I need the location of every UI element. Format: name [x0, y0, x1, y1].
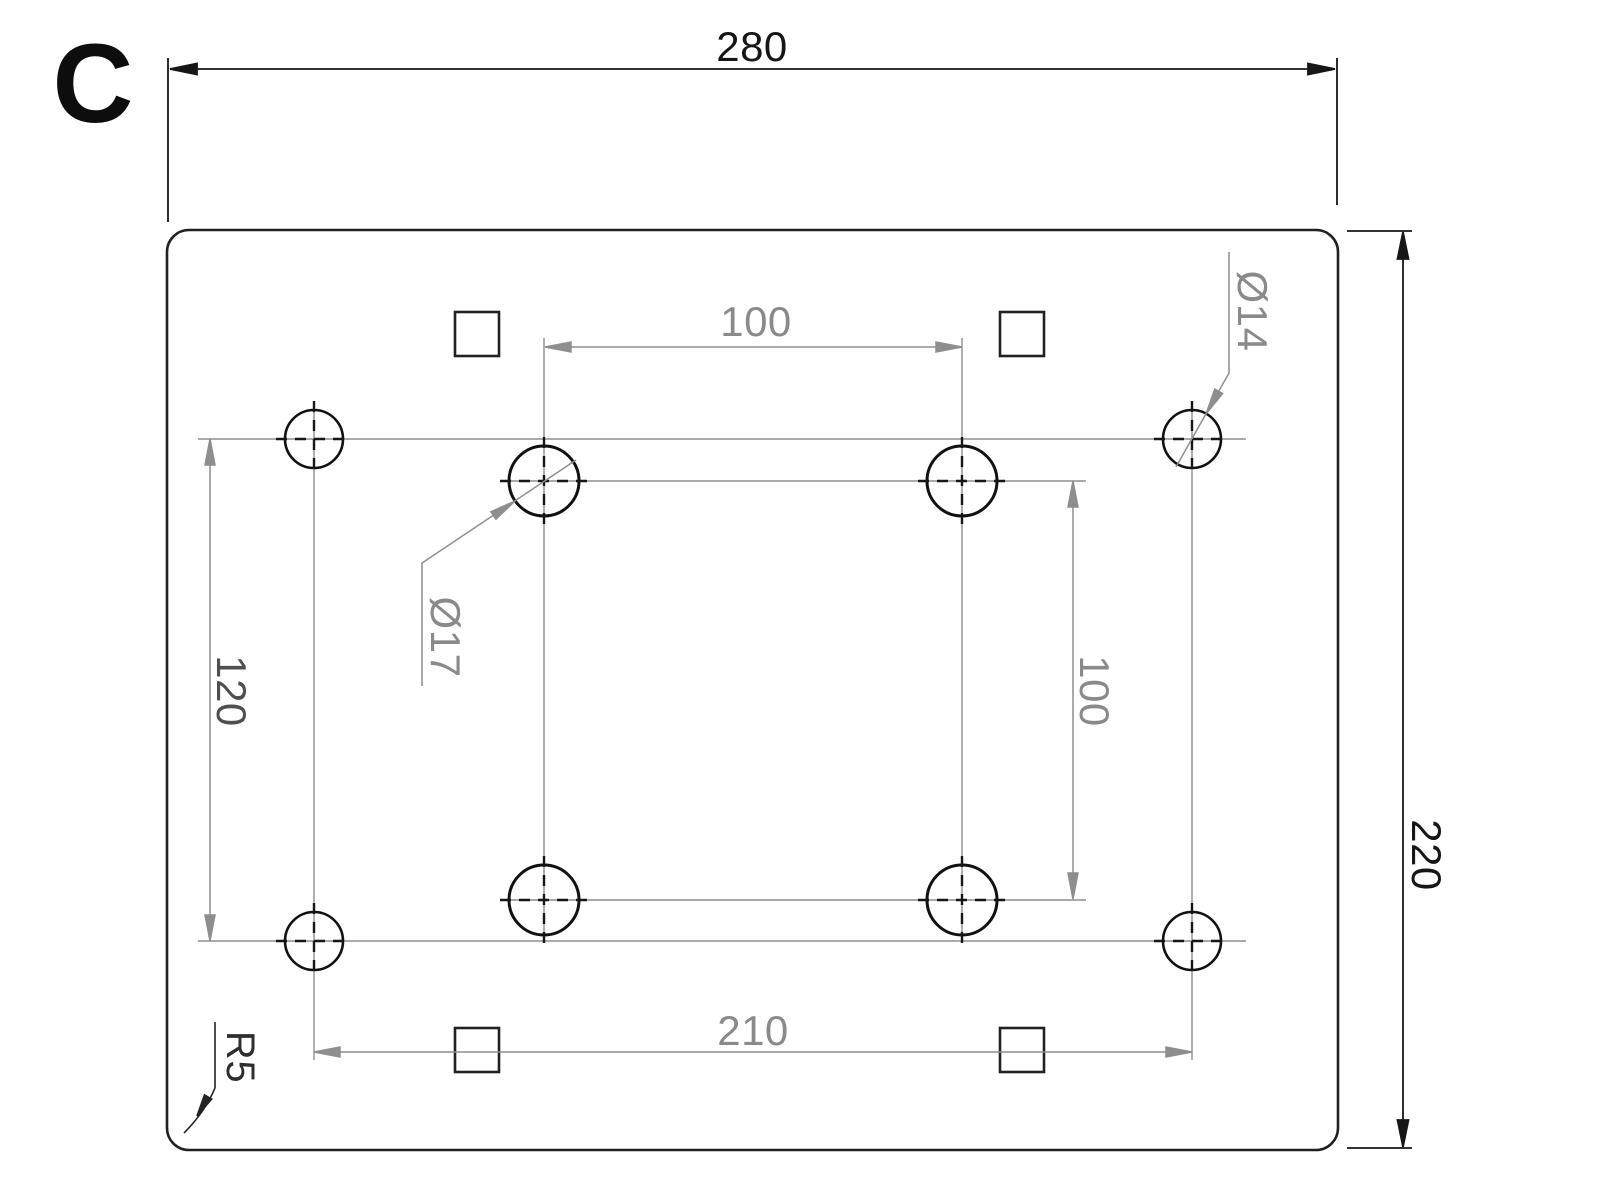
- arrowhead: [1206, 389, 1223, 414]
- square-opening: [455, 312, 499, 356]
- dim-corner-radius-label: R5: [220, 1031, 260, 1083]
- dim-overall-height-label: 220: [1405, 819, 1447, 891]
- arrowhead: [205, 439, 215, 465]
- dim-corner-hole-diameter-label: Ø14: [1231, 271, 1273, 352]
- arrowhead: [170, 64, 197, 75]
- dim-center-hole-spacing-vertical-label: 100: [1073, 655, 1115, 727]
- arrowhead: [205, 915, 215, 941]
- dim-280: [168, 58, 1337, 222]
- drawing-sheet: C 280 220 100 100 120 210 Ø14 Ø17 R5: [0, 0, 1600, 1200]
- drawing-canvas: [0, 0, 1600, 1200]
- arrowhead: [1308, 64, 1335, 75]
- dim-corner-hole-spacing-horizontal-label: 210: [717, 1010, 789, 1052]
- arrowhead: [314, 1047, 340, 1057]
- square-opening: [1000, 312, 1044, 356]
- arrowhead: [1068, 873, 1078, 899]
- dim-center-hole-diameter-label: Ø17: [424, 597, 466, 678]
- arrowhead: [1398, 232, 1409, 259]
- dim-center-hole-spacing-horizontal-label: 100: [720, 301, 792, 343]
- square-opening: [1000, 1028, 1044, 1072]
- square-opening: [455, 1028, 499, 1072]
- dim-corner-hole-spacing-vertical-label: 120: [210, 655, 252, 727]
- view-label: C: [53, 28, 134, 140]
- arrowhead: [1166, 1047, 1192, 1057]
- arrowhead: [491, 501, 515, 519]
- dim-220: [1347, 231, 1412, 1148]
- arrowhead: [936, 342, 962, 352]
- dim-overall-width-label: 280: [716, 26, 788, 68]
- arrowhead: [1068, 481, 1078, 507]
- leader-r5: [184, 1022, 215, 1133]
- center-holes: [509, 446, 997, 935]
- arrowhead: [197, 1095, 212, 1116]
- arrowhead: [545, 342, 571, 352]
- arrowhead: [1398, 1120, 1409, 1147]
